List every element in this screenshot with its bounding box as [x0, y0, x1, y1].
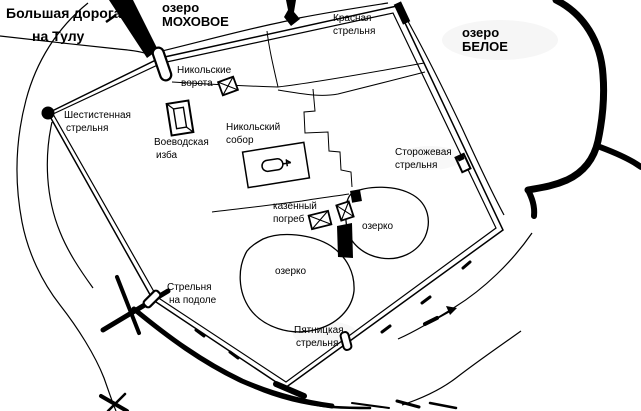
- label-voevodskaya-izba: Воеводская изба: [154, 136, 209, 162]
- shestistennaya-tower-icon: [42, 107, 55, 120]
- interior-lines: [172, 31, 425, 212]
- label-kazenny-pogreb: казенный погреб: [273, 200, 317, 226]
- ozerko-west-outline: [240, 235, 354, 332]
- label-podole-tower: Стрельня на подоле: [167, 281, 216, 307]
- fortress-map: Большая дорога на Тулу озеро МОХОВОЕ озе…: [0, 0, 641, 411]
- label-road-to-tula: Большая дорога на Тулу: [6, 2, 121, 48]
- fortress-wall: [48, 6, 503, 388]
- label-nikolskie-vorota: Никольские ворота: [177, 64, 231, 90]
- krasnaya-tower-icon: [394, 1, 411, 24]
- inner-lakes: [240, 187, 428, 332]
- label-ozerko-east: озерко: [362, 220, 393, 233]
- nikolsky-sobor-icon: [243, 142, 310, 187]
- lake-channel: [337, 223, 353, 258]
- label-shestistennaya-tower: Шестистенная стрельня: [64, 109, 131, 135]
- terrain-lines: [0, 3, 532, 411]
- label-nikolsky-sobor: Никольский собор: [226, 121, 280, 147]
- black-building-icon: [350, 189, 362, 203]
- stream-from-mokhovoye: [284, 0, 300, 26]
- podole-tower-icon: [142, 289, 161, 308]
- label-pyatnitskaya-tower: Пятницкая стрельня: [294, 324, 344, 350]
- label-krasnaya-tower: Красная стрельня: [333, 12, 375, 38]
- voevodskaya-izba-icon: [167, 100, 194, 135]
- label-storozhevaya-tower: Сторожевая стрельня: [395, 146, 452, 172]
- nikolskie-vorota-gate-icon: [151, 46, 172, 82]
- label-lake-beloye: озеро БЕЛОЕ: [462, 26, 508, 54]
- label-ozerko-west: озерко: [275, 265, 306, 278]
- label-lake-mokhovoye: озеро МОХОВОЕ: [162, 1, 229, 29]
